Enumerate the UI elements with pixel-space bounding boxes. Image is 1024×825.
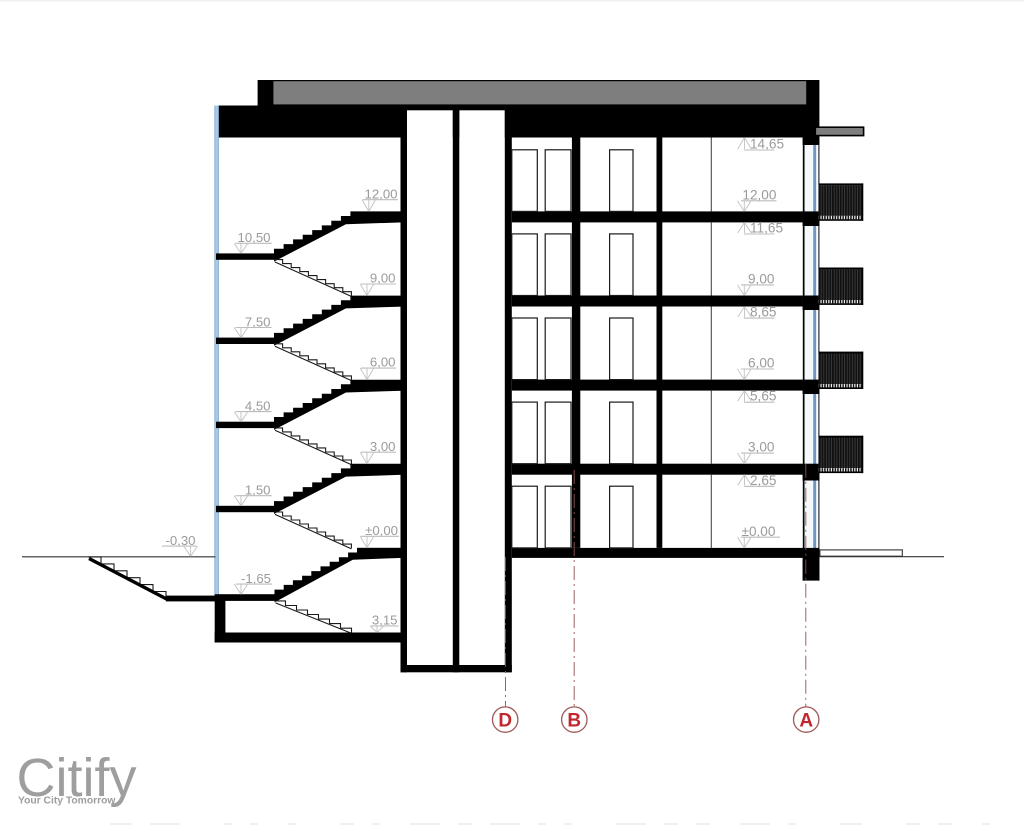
svg-text:14,65: 14,65 — [750, 137, 784, 152]
svg-text:B: B — [567, 710, 581, 731]
svg-text:5,65: 5,65 — [750, 389, 776, 404]
svg-text:2,65: 2,65 — [750, 473, 776, 488]
svg-text:6,00: 6,00 — [748, 356, 775, 371]
svg-text:±0,00: ±0,00 — [742, 524, 776, 539]
svg-text:11,65: 11,65 — [750, 221, 783, 236]
svg-text:D: D — [498, 710, 512, 731]
svg-text:3,00: 3,00 — [748, 440, 775, 455]
svg-text:9,00: 9,00 — [370, 271, 396, 286]
svg-text:3,00: 3,00 — [370, 439, 396, 454]
svg-text:A: A — [799, 710, 813, 731]
svg-text:9,00: 9,00 — [748, 272, 775, 287]
svg-text:8,65: 8,65 — [750, 305, 776, 320]
svg-text:6,00: 6,00 — [370, 355, 396, 370]
svg-text:12,00: 12,00 — [742, 187, 776, 202]
svg-text:Your City Tomorrow: Your City Tomorrow — [18, 796, 116, 807]
